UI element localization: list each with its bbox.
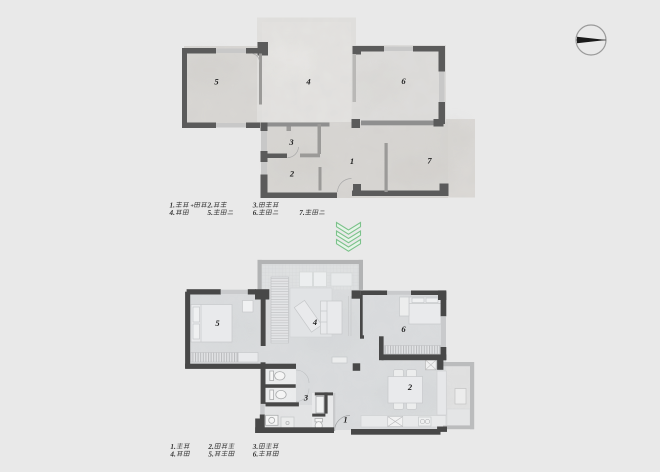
svg-text:1: 1 (350, 156, 354, 166)
svg-text:5.: 5. (208, 209, 214, 217)
svg-text:4.: 4. (169, 450, 176, 458)
svg-text:2: 2 (289, 169, 295, 179)
svg-text:1: 1 (343, 415, 347, 425)
svg-text:6.: 6. (253, 450, 259, 458)
svg-text:4: 4 (312, 317, 317, 327)
svg-text:7.: 7. (299, 209, 305, 217)
svg-text:5.: 5. (208, 450, 214, 458)
svg-text:4: 4 (305, 77, 310, 87)
svg-text:4.: 4. (169, 209, 176, 217)
svg-text:3: 3 (288, 137, 294, 147)
svg-text:6.: 6. (253, 209, 259, 217)
svg-text:3: 3 (303, 393, 309, 403)
svg-text:+: + (190, 204, 194, 210)
svg-text:2: 2 (407, 382, 413, 392)
